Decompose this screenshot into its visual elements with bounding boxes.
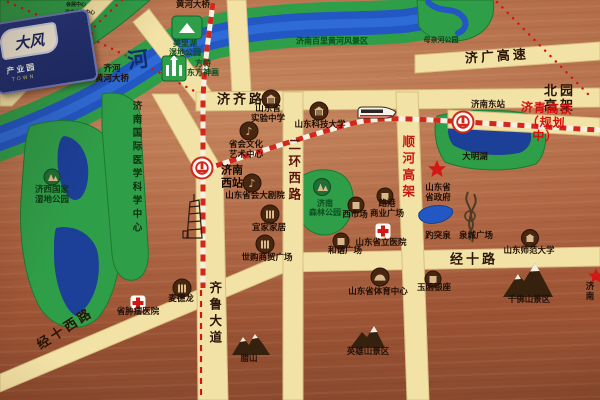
- label-yingxiongshan: 英雄山景区: [347, 348, 390, 358]
- label-fangte-park: 方特 东方神画: [187, 59, 219, 77]
- label-shigou-plaza: 世购商贸广场: [241, 254, 292, 264]
- label-baili-scenic: 济南百里黄河风景区: [296, 36, 368, 45]
- signboard-title: 大风: [13, 28, 46, 53]
- label-jinan-right-edge: 济南: [585, 283, 595, 303]
- label-lashan: 腊山: [240, 355, 257, 365]
- label-mother-river-park: 母亲河公园: [424, 36, 459, 44]
- label-erhuan-west-road: 二环西路: [286, 138, 300, 204]
- label-shandong-normal-univ: 山东师范大学: [503, 247, 554, 257]
- label-experimental-school: 山东省 实验中学: [251, 105, 285, 125]
- label-grand-theatre: 山东省会大剧院: [225, 192, 285, 202]
- label-jixi-wetland: 济西国家 湿地公园: [35, 186, 69, 206]
- label-quancheng-square: 泉城广场: [459, 232, 493, 242]
- label-meilihu-park: 美里湖 湿地公园: [169, 39, 201, 57]
- label-yellow-river-char: 河: [126, 47, 150, 74]
- label-forest-park: 济南 森林公园: [309, 199, 341, 217]
- label-culture-art-center: 省会文化 艺术中心: [229, 141, 263, 161]
- label-medical-center: 济南国际医学科学中心: [130, 101, 141, 236]
- label-qilu-avenue: 齐鲁大道: [207, 281, 221, 347]
- label-qihe-huanghe-bridge: 齐河 黄河大桥: [95, 65, 129, 85]
- label-shunhe-elevated: 顺河高架: [400, 135, 414, 201]
- label-jinan-east-station: 济南东站: [471, 101, 505, 111]
- label-baotu-spring: 趵突泉: [425, 232, 451, 242]
- label-tumor-hospital: 省肿瘤医院: [117, 308, 160, 318]
- map-board-photo: ♪ ♪: [0, 0, 600, 400]
- label-sdust: 山东科技大学: [294, 121, 345, 131]
- label-yuhan-yinzuo: 玉函银座: [417, 284, 451, 294]
- label-prov-government: 山东省 省政府: [425, 184, 451, 204]
- label-jingshi-west-road: 经十西路: [35, 306, 97, 353]
- label-provincial-hospital: 山东省立医院: [355, 239, 406, 249]
- label-west-market: 西市场: [342, 211, 368, 221]
- label-jinan-west-station: 济南 西站: [221, 164, 243, 189]
- label-expo-center: 会展中心: [66, 3, 86, 9]
- label-jiqing-hsr: 济青高铁（规划中）: [518, 101, 574, 145]
- label-qianfoshan: 千佛山景区: [508, 296, 551, 306]
- label-jingshi-road: 经十路: [450, 254, 498, 269]
- label-daming-lake: 大明湖: [462, 153, 488, 163]
- label-metro-store: 麦德龙: [168, 295, 194, 305]
- signboard-plaque: 大风: [0, 22, 60, 61]
- label-jiguang-expressway: 济广高速: [465, 48, 530, 67]
- label-lugang-plaza: 路港 商业广场: [370, 200, 404, 220]
- label-sports-center: 山东省体育中心: [348, 288, 408, 298]
- label-ikea: 宜家家居: [252, 224, 286, 234]
- label-huanghe-bridge-top: 黄河大桥: [176, 1, 210, 11]
